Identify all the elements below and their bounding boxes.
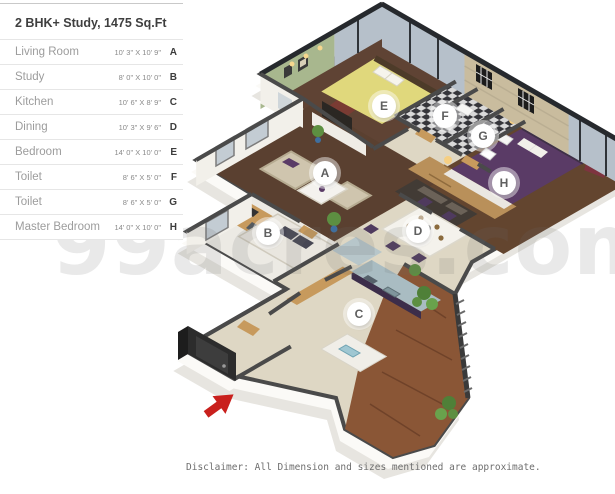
room-label-h: H xyxy=(492,171,516,195)
legend-row-master-bedroom: Master Bedroom 14' 0" X 10' 0" H xyxy=(0,214,183,240)
legend-row-kitchen: Kitchen 10' 6" X 8' 9" C xyxy=(0,89,183,114)
room-dimension: 14' 0" X 10' 0" xyxy=(114,223,161,232)
room-letter: G xyxy=(166,197,177,208)
room-dimension: 14' 0" X 10' 0" xyxy=(114,148,161,157)
room-letter: C xyxy=(166,97,177,108)
room-letter: H xyxy=(166,222,177,233)
room-name: Kitchen xyxy=(15,96,119,108)
room-name: Bedroom xyxy=(15,146,114,158)
room-letter: A xyxy=(166,47,177,58)
room-dimension: 10' 6" X 8' 9" xyxy=(119,98,161,107)
room-label-f: F xyxy=(433,104,457,128)
room-letter: F xyxy=(166,172,177,183)
disclaimer-text: Disclaimer: All Dimension and sizes ment… xyxy=(186,462,541,473)
room-dimension: 8' 6" X 5' 0" xyxy=(123,198,161,207)
plan-title: 2 BHK+ Study, 1475 Sq.Ft xyxy=(0,4,183,39)
room-name: Toilet xyxy=(15,196,123,208)
room-name: Study xyxy=(15,71,119,83)
room-dimension: 10' 3" X 9' 6" xyxy=(119,123,161,132)
room-letter: E xyxy=(166,147,177,158)
room-label-g: G xyxy=(471,124,495,148)
room-name: Living Room xyxy=(15,46,114,58)
legend-row-bedroom: Bedroom 14' 0" X 10' 0" E xyxy=(0,139,183,164)
room-label-c: C xyxy=(347,302,371,326)
room-label-a: A xyxy=(313,161,337,185)
legend-row-toilet-g: Toilet 8' 6" X 5' 0" G xyxy=(0,189,183,214)
room-name: Master Bedroom xyxy=(15,221,114,233)
legend-panel: 2 BHK+ Study, 1475 Sq.Ft Living Room 10'… xyxy=(0,3,183,240)
room-dimension: 8' 0" X 10' 0" xyxy=(119,73,161,82)
floorplan-page: 99acres.com A B C D E F G H 2 BHK+ Study… xyxy=(0,0,615,494)
legend-row-study: Study 8' 0" X 10' 0" B xyxy=(0,64,183,89)
room-label-b: B xyxy=(256,221,280,245)
room-label-e: E xyxy=(372,94,396,118)
room-letter: B xyxy=(166,72,177,83)
room-name: Dining xyxy=(15,121,119,133)
room-label-d: D xyxy=(406,219,430,243)
legend-row-living-room: Living Room 10' 3" X 10' 9" A xyxy=(0,39,183,64)
room-letter: D xyxy=(166,122,177,133)
legend-row-toilet-f: Toilet 8' 6" X 5' 0" F xyxy=(0,164,183,189)
room-dimension: 8' 6" X 5' 0" xyxy=(123,173,161,182)
balcony-plant xyxy=(442,396,456,410)
legend-row-dining: Dining 10' 3" X 9' 6" D xyxy=(0,114,183,139)
room-name: Toilet xyxy=(15,171,123,183)
room-dimension: 10' 3" X 10' 9" xyxy=(114,48,161,57)
